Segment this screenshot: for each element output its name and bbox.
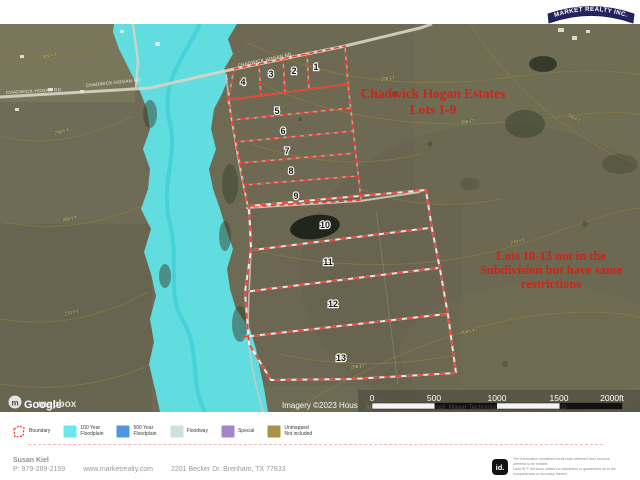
lot-label-12: 12 — [328, 299, 338, 309]
lot-label-8: 8 — [288, 166, 293, 176]
lot-label-6: 6 — [280, 126, 285, 136]
agent-address: 2201 Becker Dr. Brenham, TX 77833 — [171, 466, 286, 473]
lots-note-line1: Lots 10-13 not in the — [496, 249, 606, 263]
legend-item-100yr-floodplain: 100 Year Floodplain — [63, 425, 103, 438]
legend-item-500yr-floodplain: 500 Year Floodplain — [116, 425, 156, 438]
lot-label-11: 11 — [323, 257, 333, 267]
scale-tick: 1500 — [550, 393, 569, 403]
top-bar: MARKET REALTY INC. — [0, 0, 640, 24]
lots-note-line2: Subdivision but have same — [480, 263, 623, 277]
lot-label-5: 5 — [274, 106, 279, 116]
scale-tick: 500 — [427, 393, 441, 403]
market-realty-logo: MARKET REALTY INC. — [545, 0, 637, 24]
legend-label: 100 Year Floodplain — [80, 425, 103, 438]
legend-label: Boundary — [29, 428, 50, 434]
legend-divider — [28, 444, 603, 445]
lot-label-7: 7 — [284, 146, 289, 156]
lot-label-4: 4 — [240, 77, 245, 87]
lot-label-10: 10 — [320, 220, 330, 230]
parcel-map[interactable]: 1 2 3 4 5 6 7 8 9 10 11 12 13 CHADWICK-H… — [0, 24, 640, 412]
legend-label: Unmapped Not included — [284, 425, 312, 438]
legend-label: 500 Year Floodplain — [133, 425, 156, 438]
estates-title-line1: Chadwick Hogan Estates — [361, 86, 506, 101]
imagery-attribution-faint: ton-Galveston Area Council, Maxar Techno… — [366, 404, 567, 411]
floodplain-100yr-swatch — [63, 425, 77, 438]
lots-note-line3: restrictions — [521, 277, 581, 291]
floodplain-500yr-swatch — [116, 425, 130, 438]
special-swatch — [221, 425, 235, 438]
land-id-logo: id. — [492, 459, 508, 475]
legend-item-floodway: Floodway — [170, 425, 208, 438]
legend-item-special: Special — [221, 425, 254, 438]
scale-tick: 0 — [370, 393, 375, 403]
floodway-swatch — [170, 425, 184, 438]
legend-label: Floodway — [187, 428, 208, 434]
svg-text:260 FT: 260 FT — [351, 363, 366, 369]
disclaimer-text: The information contained herein was obt… — [513, 457, 637, 476]
estates-title-line2: Lots 1-9 — [410, 102, 457, 117]
boundary-icon — [12, 425, 26, 438]
legend-label: Special — [238, 428, 254, 434]
lot-label-3: 3 — [268, 69, 273, 79]
lot-label-9: 9 — [293, 191, 298, 201]
legend-item-boundary: Boundary — [12, 425, 50, 438]
lot-label-13: 13 — [336, 353, 346, 363]
imagery-attribution: Imagery ©2023 Hous — [282, 401, 358, 410]
agent-website: www.marketrealty.com — [83, 466, 153, 473]
scale-tick: 1000 — [488, 393, 507, 403]
scale-tick: 2000ft — [600, 393, 624, 403]
google-watermark[interactable]: Google — [24, 399, 62, 411]
mapbox-icon-letter: m — [11, 399, 18, 408]
agent-name: Susan Kiel — [13, 457, 302, 464]
legend-item-unmapped: Unmapped Not included — [267, 425, 312, 438]
lot-label-1: 1 — [313, 62, 318, 72]
agent-contact: Susan Kiel P: 979-289-2159 www.marketrea… — [13, 457, 302, 473]
footer-bar: Susan Kiel P: 979-289-2159 www.marketrea… — [0, 450, 640, 480]
lot-label-2: 2 — [291, 66, 296, 76]
agent-phone: P: 979-289-2159 — [13, 466, 65, 473]
unmapped-swatch — [267, 425, 281, 438]
flyer-page: MARKET REALTY INC. — [0, 0, 640, 480]
